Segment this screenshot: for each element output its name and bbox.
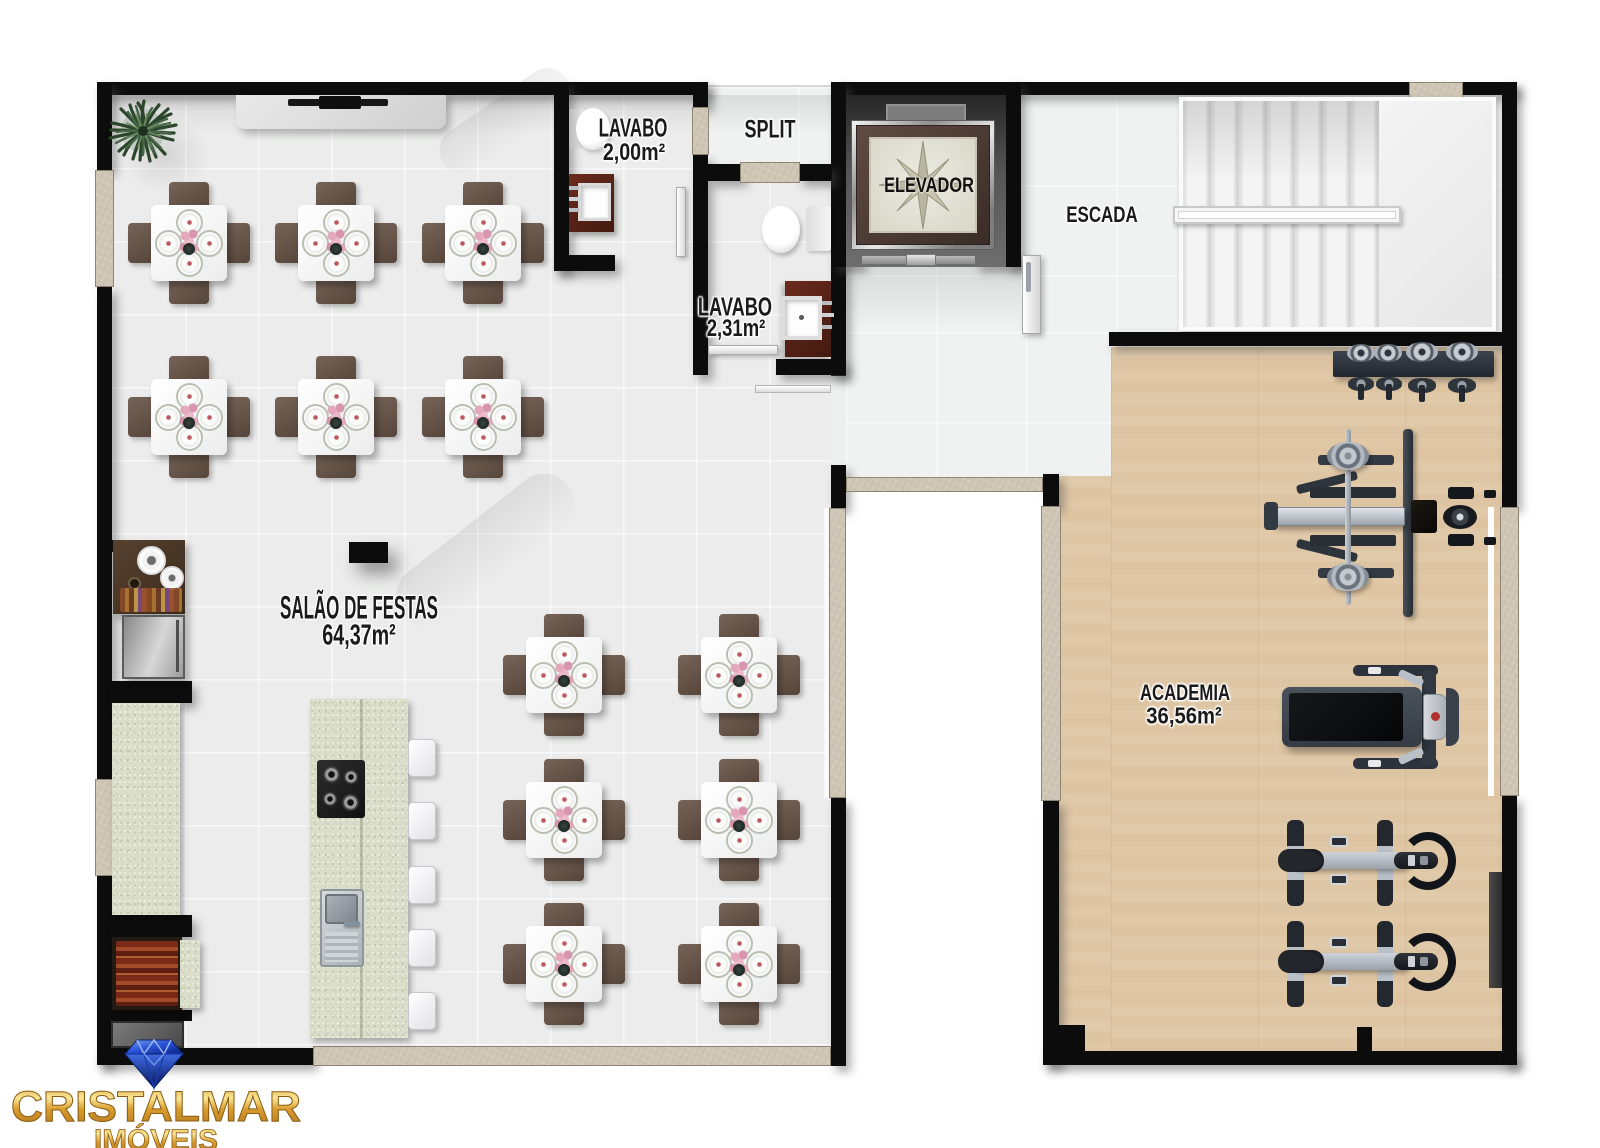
svg-text:IMÓVEIS: IMÓVEIS [94,1123,218,1148]
